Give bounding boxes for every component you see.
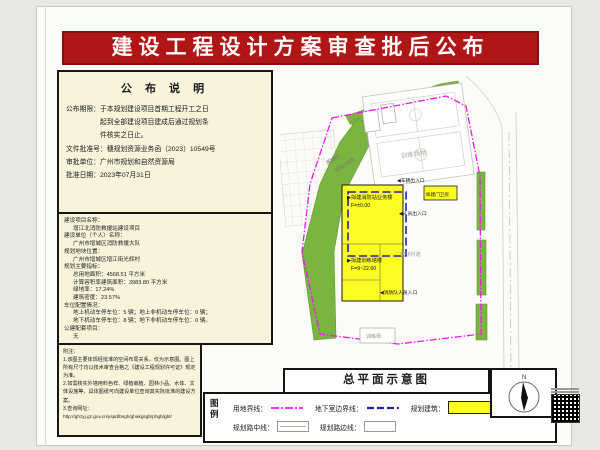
north-arrow-box: N <box>490 368 557 418</box>
project-density: 建筑密度：23.57% <box>64 295 266 303</box>
legend-title-char2: 例 <box>210 409 227 420</box>
project-public-value: 无 <box>64 334 266 342</box>
legend-item-planned-building: 规划建筑： <box>411 401 494 414</box>
road-center-swatch <box>277 421 309 432</box>
note-3: 3.查询网址： <box>63 405 196 413</box>
staff-entrance-label: ◀人员出入口 <box>399 210 427 217</box>
legend-item-road-center: 规划路中线： <box>233 421 309 432</box>
site-plan-drawing: 训练场地 ▶拟建消防站业务楼 F=±0.00 ▶拟建训练塔楼 F=9~22.60… <box>280 72 557 373</box>
north-label: N <box>522 375 526 381</box>
project-site-area: 总用地面积：4568.51 平方米 <box>64 272 266 280</box>
project-owner-label: 建设单位（个人）名称： <box>64 233 266 241</box>
notice-header: 公 布 说 明 <box>59 80 271 96</box>
notice-approval-date: 批准日期：2023年07月31日 <box>66 169 264 182</box>
site-boundary-swatch <box>270 404 304 412</box>
project-owner: 广州市增城区消防救援大队 <box>64 241 266 249</box>
query-url: http://ghzyj.gz.gov.cn/yspd/bsgh/ghakgsg… <box>63 413 196 421</box>
legend-row-2: 规划路中线： 规划路边线： <box>233 421 396 432</box>
project-parking-above: 地上机动车停车位：5 辆；地上非机动车停车位：0 辆； <box>64 310 266 318</box>
existing-road-label: 现状村道 <box>400 250 421 258</box>
notice-doc-number: 文件批准号：穗规划资源业务函〔2023〕10549号 <box>66 143 264 156</box>
gate-house-label: 拟建门卫房 <box>426 191 449 198</box>
legend-building-label: 规划建筑： <box>411 403 445 413</box>
sheet-margin-line <box>45 6 46 446</box>
project-name-label: 建设项目名称： <box>64 218 266 226</box>
notes-header: 附注： <box>63 348 196 356</box>
existing-road-edge-line2 <box>516 112 519 372</box>
legend-item-site-boundary: 用地界线： <box>233 403 304 413</box>
building1-level-label: F=±0.00 <box>351 203 370 209</box>
notice-authority: 审批单位：广州市规划和自然资源局 <box>66 156 264 169</box>
project-info-panel: 建设项目名称： 增江北消防救援站建设项目 建设单位（个人）名称： 广州市增城区消… <box>57 214 273 345</box>
vehicle-entrance-label: ◀车辆出入口 <box>397 177 425 184</box>
planned-building-swatch <box>448 401 494 414</box>
road-edge-swatch <box>364 421 396 432</box>
project-parking-below: 地下机动车停车位：8 辆；地下非机动车停车位：0 辆。 <box>64 318 266 326</box>
legend-item-road-edge: 规划路边线： <box>320 421 396 432</box>
training-ground: 训练场地 <box>362 83 474 188</box>
qr-code <box>551 394 580 423</box>
tower-label: ▶拟建训练塔楼 <box>347 256 382 264</box>
project-green-ratio: 绿地率：17.24% <box>64 287 266 295</box>
building1-label: ▶拟建消防站业务楼 <box>347 193 393 201</box>
note-2: 2.如需核实外墙用料色样、绿植栽植、园林小品、水体、文体设施等，具体图纸可向建设… <box>63 380 196 404</box>
legend-road-edge-label: 规划路边线： <box>320 422 361 432</box>
legend-title-char1: 图 <box>210 398 227 409</box>
notes-body: 附注： 1.该图主要体现经批准的空间布局关系，仅为示意图。图上所有尺寸均以技术审… <box>59 345 200 421</box>
notes-panel: 附注： 1.该图主要体现经批准的空间布局关系，仅为示意图。图上所有尺寸均以技术审… <box>57 345 202 437</box>
notice-period-line1: 公布期限：于本规划建设项目首期工程开工之日 <box>66 103 264 116</box>
road-center-dashline <box>509 132 511 372</box>
legend-site-boundary-label: 用地界线： <box>233 403 267 413</box>
legend-road-center-label: 规划路中线： <box>233 422 274 432</box>
notice-panel: 公 布 说 明 公布期限：于本规划建设项目首期工程开工之日 起到全部建设项目建成… <box>57 70 273 214</box>
notice-period-line3: 件核实之日止。 <box>66 129 264 142</box>
project-info-body: 建设项目名称： 增江北消防救援站建设项目 建设单位（个人）名称： 广州市增城区消… <box>59 214 271 341</box>
north-arrow-icon: N <box>498 371 550 415</box>
project-indicators-label: 规划主要指标： <box>64 264 266 272</box>
legend-item-basement-line: 地下室边界线： <box>315 403 400 413</box>
tower-level-label: F=9~22.60 <box>351 266 376 272</box>
note-1: 1.该图主要体现经批准的空间布局关系，仅为示意图。图上所有尺寸均以技术审查合格之… <box>63 356 196 380</box>
legend-basement-label: 地下室边界线： <box>315 403 363 413</box>
project-public-label: 公建配套项目： <box>64 326 266 334</box>
page-title: 建设工程设计方案审查批后公布 <box>62 31 539 65</box>
notice-period-line2: 起到全部建设项目建成后通过规划条 <box>66 116 264 129</box>
project-location-label: 规划地块位置： <box>64 249 266 257</box>
plan-title: 总平面示意图 <box>283 368 490 394</box>
qr-caption-line1 <box>551 388 579 390</box>
qr-code-block <box>551 388 581 430</box>
qr-caption-line2 <box>551 391 579 393</box>
basement-line-swatch <box>366 404 400 412</box>
legend-title: 图 例 <box>205 394 227 441</box>
fire-entrance-label: ◀消防队人员入口 <box>380 289 417 296</box>
training-yard-label: 训练场 <box>366 333 381 340</box>
notice-body: 公布期限：于本规划建设项目首期工程开工之日 起到全部建设项目建成后通过规划条 件… <box>59 103 271 182</box>
